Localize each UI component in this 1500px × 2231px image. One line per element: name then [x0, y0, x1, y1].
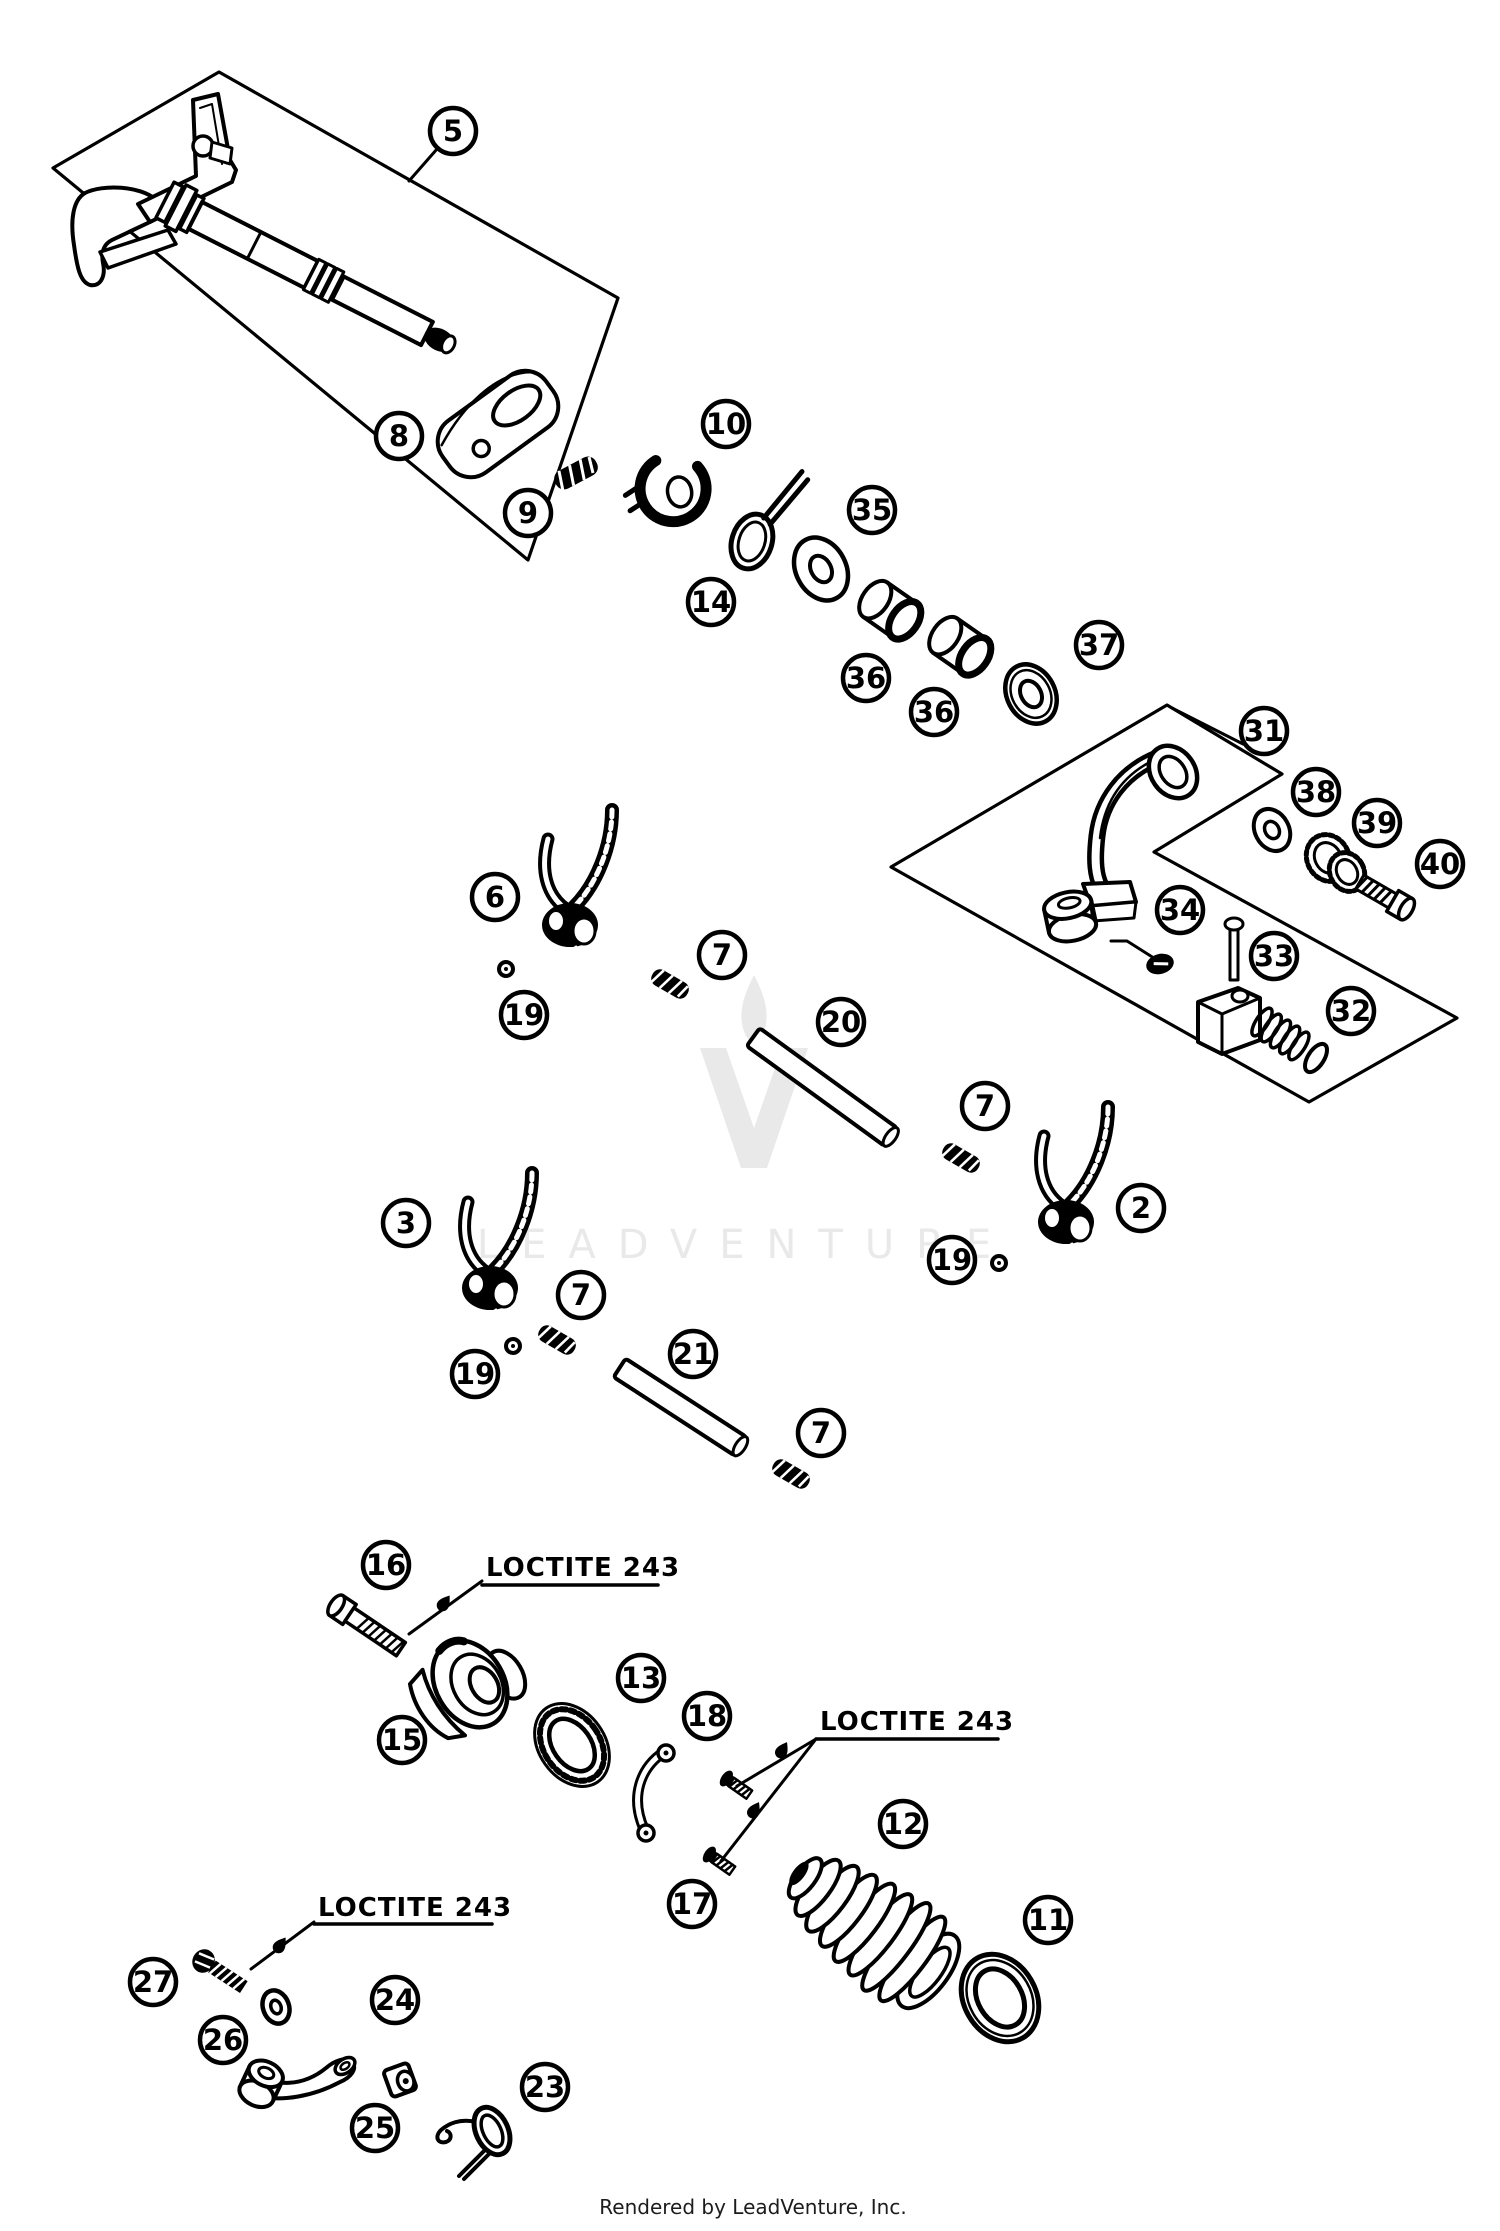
callout-36: 36	[911, 689, 957, 735]
washer-26-drawing	[258, 1987, 294, 2028]
callout-23: 23	[522, 2064, 568, 2110]
callout-34: 34	[1157, 887, 1203, 933]
callout-7: 7	[558, 1272, 604, 1318]
callout-7: 7	[962, 1083, 1008, 1129]
svg-text:15: 15	[382, 1723, 422, 1757]
svg-text:19: 19	[455, 1357, 495, 1391]
leader-callout-31	[1172, 708, 1243, 744]
spring-7d-drawing	[769, 1456, 812, 1491]
callout-7: 7	[699, 932, 745, 978]
callout-6: 6	[472, 874, 518, 920]
svg-text:26: 26	[203, 2023, 243, 2057]
svg-text:35: 35	[852, 493, 892, 527]
callout-5: 5	[430, 108, 476, 154]
callout-19: 19	[929, 1237, 975, 1283]
svg-text:38: 38	[1296, 775, 1336, 809]
callout-15: 15	[379, 1717, 425, 1763]
callout-31: 31	[1241, 708, 1287, 754]
svg-text:27: 27	[133, 1965, 173, 1999]
svg-text:8: 8	[389, 419, 409, 453]
clip-10-drawing	[620, 453, 711, 530]
shift-fork-2-drawing	[1038, 1107, 1108, 1251]
callout-14: 14	[688, 579, 734, 625]
svg-text:12: 12	[883, 1807, 923, 1841]
svg-text:2: 2	[1131, 1191, 1151, 1225]
callout-12: 12	[880, 1801, 926, 1847]
callout-2: 2	[1118, 1185, 1164, 1231]
svg-text:37: 37	[1079, 628, 1119, 662]
seal-ring-37-drawing	[995, 655, 1066, 732]
shift-arm-24-drawing	[235, 2054, 358, 2112]
callout-36: 36	[843, 655, 889, 701]
callout-35: 35	[849, 487, 895, 533]
svg-text:36: 36	[846, 661, 886, 695]
svg-text:14: 14	[691, 585, 731, 619]
svg-text:18: 18	[687, 1699, 727, 1733]
callout-21: 21	[670, 1331, 716, 1377]
shift-rail-32-drawing	[1198, 988, 1331, 1076]
spring-7a-drawing	[648, 966, 691, 1001]
callout-38: 38	[1293, 769, 1339, 815]
callout-3: 3	[383, 1200, 429, 1246]
bolt-40-drawing	[1354, 872, 1418, 923]
seal-ring-11-drawing	[946, 1940, 1054, 2056]
washer-38-drawing	[1247, 803, 1298, 858]
callout-layer: 5891014353636373138394034333261972072193…	[130, 108, 1463, 2151]
svg-text:16: 16	[366, 1548, 406, 1582]
callout-37: 37	[1076, 622, 1122, 668]
callout-7: 7	[798, 1410, 844, 1456]
footer-credit: Rendered by LeadVenture, Inc.	[599, 2195, 906, 2219]
callout-32: 32	[1328, 988, 1374, 1034]
svg-text:19: 19	[932, 1243, 972, 1277]
leader-callout-5	[409, 149, 437, 181]
svg-text:25: 25	[355, 2111, 395, 2145]
detent-lever-18-drawing	[638, 1745, 674, 1841]
bushing-36a-drawing	[853, 575, 928, 645]
svg-text:20: 20	[821, 1005, 861, 1039]
nut-34-drawing	[1111, 941, 1176, 977]
callout-18: 18	[684, 1693, 730, 1739]
svg-text:40: 40	[1420, 847, 1460, 881]
bushing-36b-drawing	[923, 611, 998, 681]
ball-19a-drawing	[499, 962, 513, 976]
svg-text:21: 21	[673, 1337, 713, 1371]
callout-33: 33	[1251, 933, 1297, 979]
seal-ring-13-drawing	[519, 1689, 625, 1801]
callout-27: 27	[130, 1959, 176, 2005]
svg-text:39: 39	[1357, 806, 1397, 840]
callout-10: 10	[703, 401, 749, 447]
callout-20: 20	[818, 999, 864, 1045]
bolt-16-drawing	[324, 1592, 407, 1659]
svg-text:11: 11	[1028, 1903, 1068, 1937]
leadventure-watermark: LEADVENTURE	[477, 975, 1013, 1268]
svg-text:6: 6	[485, 880, 505, 914]
svg-text:13: 13	[621, 1661, 661, 1695]
spring-9-drawing	[551, 453, 601, 492]
torsion-spring-23-drawing	[437, 2102, 517, 2179]
shift-fork-6-drawing	[542, 810, 612, 954]
svg-text:7: 7	[975, 1089, 995, 1123]
bolt-27-drawing	[188, 1945, 251, 1997]
rubber-boot-12-drawing	[762, 1827, 977, 2026]
spring-7c-drawing	[535, 1322, 578, 1357]
shift-stop-plate-drawing	[426, 358, 569, 487]
callout-40: 40	[1417, 841, 1463, 887]
svg-text:36: 36	[914, 695, 954, 729]
loctite-label-2-text: LOCTITE 243	[318, 1893, 512, 1923]
svg-text:23: 23	[525, 2070, 565, 2104]
svg-text:3: 3	[396, 1206, 416, 1240]
shift-shaft-assembly-drawing	[72, 94, 464, 368]
shift-shaft-group-box	[53, 72, 618, 560]
loctite-label-1-text: LOCTITE 243	[486, 1553, 680, 1583]
svg-text:7: 7	[811, 1416, 831, 1450]
loctite-label-3: LOCTITE 243	[721, 1707, 1014, 1861]
bushing-25-drawing	[383, 2062, 417, 2097]
callout-19: 19	[452, 1351, 498, 1397]
callout-25: 25	[352, 2105, 398, 2151]
svg-text:5: 5	[443, 114, 463, 148]
svg-text:17: 17	[672, 1887, 712, 1921]
callout-9: 9	[505, 490, 551, 536]
callout-11: 11	[1025, 1897, 1071, 1943]
svg-text:9: 9	[518, 496, 538, 530]
svg-text:10: 10	[706, 407, 746, 441]
svg-text:32: 32	[1331, 994, 1371, 1028]
parts-diagram-svg: LEADVENTURE	[0, 0, 1500, 2231]
parts-diagram-page: LEADVENTURE	[0, 0, 1500, 2231]
callout-24: 24	[372, 1977, 418, 2023]
ball-19b-drawing	[992, 1256, 1006, 1270]
svg-text:19: 19	[504, 998, 544, 1032]
svg-text:24: 24	[375, 1983, 415, 2017]
svg-text:31: 31	[1244, 714, 1284, 748]
glue-drop-icon	[773, 1739, 792, 1761]
callout-26: 26	[200, 2017, 246, 2063]
svg-text:7: 7	[712, 938, 732, 972]
callout-13: 13	[618, 1655, 664, 1701]
svg-text:34: 34	[1160, 893, 1200, 927]
callout-19: 19	[501, 992, 547, 1038]
spring-7b-drawing	[939, 1140, 982, 1175]
svg-text:7: 7	[571, 1278, 591, 1312]
ball-19c-drawing	[506, 1339, 520, 1353]
loctite-label-2: LOCTITE 243	[251, 1893, 512, 1969]
svg-text:33: 33	[1254, 939, 1294, 973]
loctite-label-3-text: LOCTITE 243	[820, 1707, 1014, 1737]
pin-33-drawing	[1225, 918, 1243, 980]
callout-39: 39	[1354, 800, 1400, 846]
loctite-label-1: LOCTITE 243	[409, 1553, 680, 1634]
callout-8: 8	[376, 413, 422, 459]
callout-17: 17	[669, 1881, 715, 1927]
callout-16: 16	[363, 1542, 409, 1588]
washer-35-drawing	[783, 528, 858, 610]
